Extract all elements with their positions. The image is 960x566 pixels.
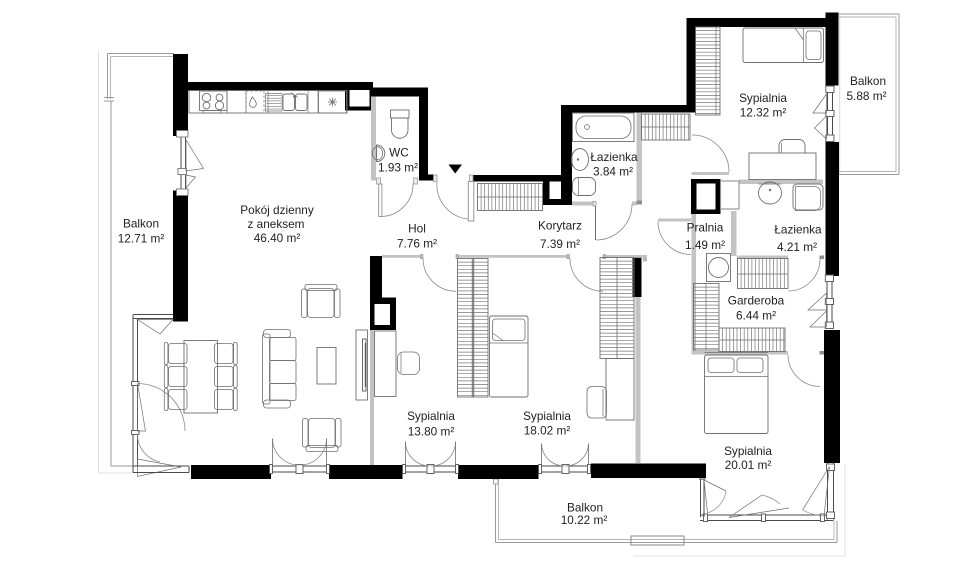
svg-text:Korytarz: Korytarz xyxy=(538,219,582,233)
svg-text:10.22 m²: 10.22 m² xyxy=(561,513,608,527)
svg-text:1.93 m²: 1.93 m² xyxy=(378,161,418,175)
svg-text:Sypialnia: Sypialnia xyxy=(407,409,455,423)
svg-text:13.80 m²: 13.80 m² xyxy=(408,425,455,439)
svg-text:Pralnia: Pralnia xyxy=(687,221,724,235)
svg-text:12.32 m²: 12.32 m² xyxy=(740,106,787,120)
svg-text:Balkon: Balkon xyxy=(123,217,159,231)
svg-text:18.02 m²: 18.02 m² xyxy=(524,424,571,438)
svg-text:12.71 m²: 12.71 m² xyxy=(118,232,165,246)
svg-text:Sypialnia: Sypialnia xyxy=(724,444,772,458)
svg-text:Pokój dzienny: Pokój dzienny xyxy=(240,203,314,217)
svg-text:Hol: Hol xyxy=(408,222,426,236)
svg-text:3.84 m²: 3.84 m² xyxy=(593,165,633,179)
svg-text:Łazienka: Łazienka xyxy=(774,223,822,237)
svg-text:46.40 m²: 46.40 m² xyxy=(254,231,301,245)
svg-text:Sypialnia: Sypialnia xyxy=(739,91,787,105)
svg-text:Sypialnia: Sypialnia xyxy=(523,409,571,423)
svg-text:7.76 m²: 7.76 m² xyxy=(397,237,437,251)
svg-text:Garderoba: Garderoba xyxy=(728,294,785,308)
svg-text:WC: WC xyxy=(389,146,409,160)
svg-text:7.39 m²: 7.39 m² xyxy=(540,237,580,251)
svg-text:20.01 m²: 20.01 m² xyxy=(725,458,772,472)
svg-text:1.49 m²: 1.49 m² xyxy=(685,238,725,252)
svg-text:z aneksem: z aneksem xyxy=(247,217,304,231)
svg-text:Łazienka: Łazienka xyxy=(590,150,638,164)
svg-text:5.88 m²: 5.88 m² xyxy=(847,89,887,103)
svg-text:Balkon: Balkon xyxy=(850,74,886,88)
svg-text:4.21 m²: 4.21 m² xyxy=(777,240,817,254)
svg-text:6.44 m²: 6.44 m² xyxy=(736,309,776,323)
